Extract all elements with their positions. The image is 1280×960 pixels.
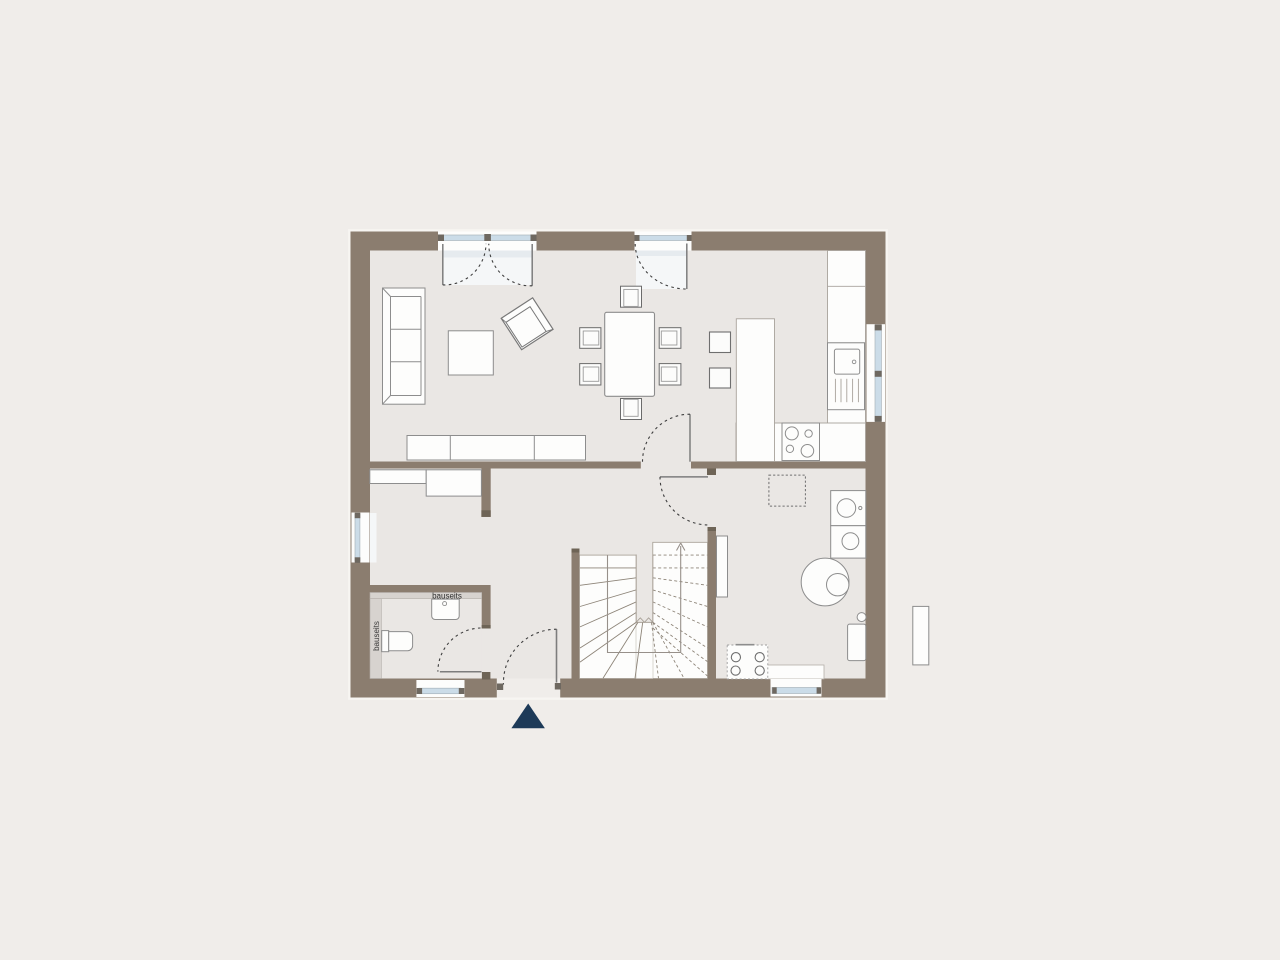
svg-text:bauseits: bauseits <box>372 621 381 651</box>
